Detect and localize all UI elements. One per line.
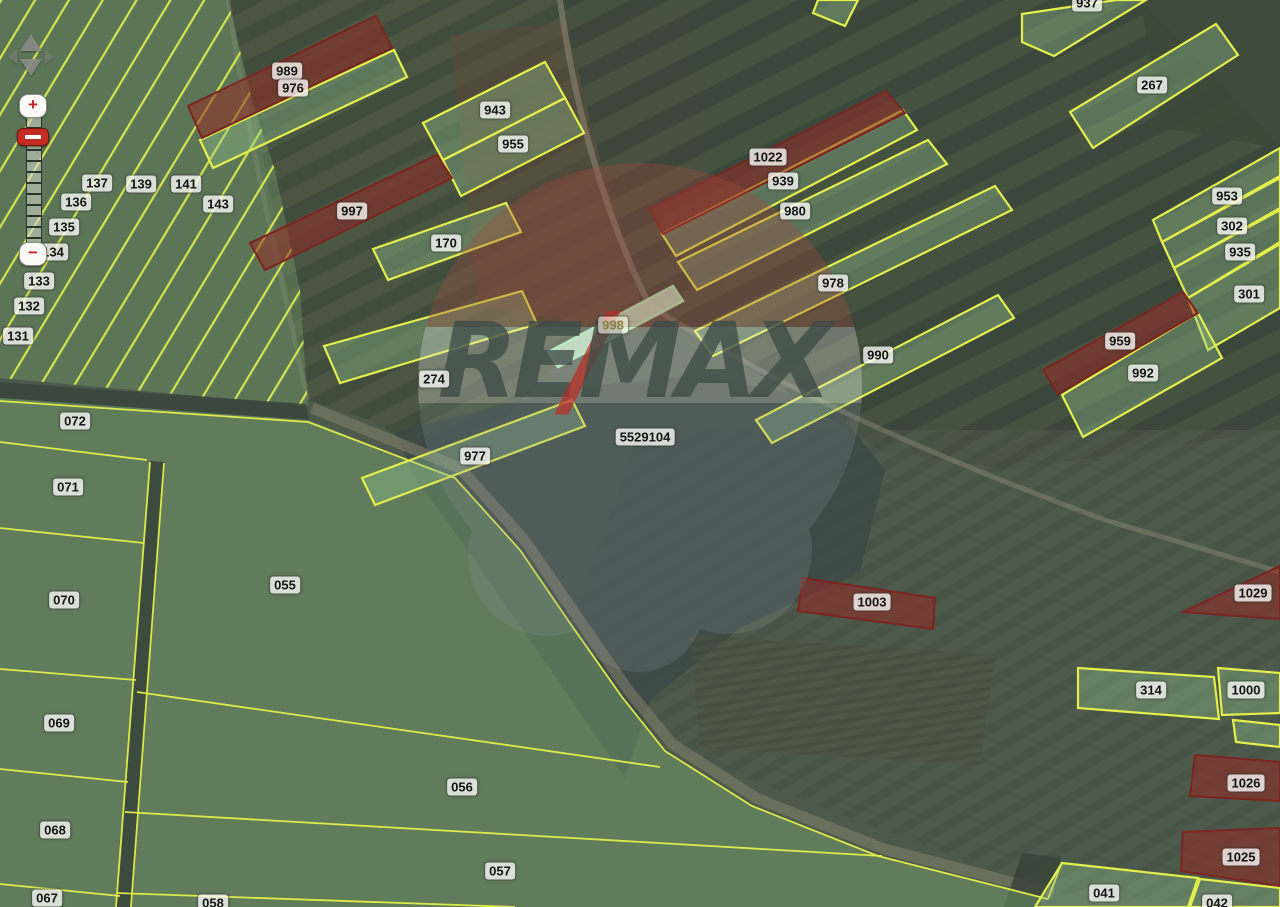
pan-right-arrow-icon[interactable] bbox=[45, 50, 54, 64]
pan-down-arrow-icon[interactable] bbox=[20, 59, 42, 76]
parcel-label[interactable]: 302 bbox=[1217, 218, 1247, 235]
parcel-label[interactable]: 139 bbox=[126, 176, 156, 193]
zoom-out-button[interactable]: − bbox=[19, 242, 47, 266]
parcel-label[interactable]: 935 bbox=[1225, 244, 1255, 261]
parcel-label[interactable]: 1029 bbox=[1235, 585, 1272, 602]
parcel-label[interactable]: 131 bbox=[3, 328, 33, 345]
parcel-label[interactable]: 058 bbox=[198, 895, 228, 907]
parcel-label[interactable]: 067 bbox=[32, 890, 62, 907]
pan-left-arrow-icon[interactable] bbox=[8, 50, 17, 64]
parcel-label[interactable]: 978 bbox=[818, 275, 848, 292]
parcel-label[interactable]: 1025 bbox=[1223, 849, 1260, 866]
map-pan-zoom-control[interactable]: + − bbox=[6, 28, 60, 278]
map-canvas[interactable]: RE / MAX bbox=[0, 0, 1280, 907]
parcel-label[interactable]: 998 bbox=[598, 317, 628, 334]
zoom-in-button[interactable]: + bbox=[19, 94, 47, 118]
parcel-label[interactable]: 141 bbox=[171, 176, 201, 193]
map-viewport[interactable]: RE / MAX 9899769439559971701022939980978… bbox=[0, 0, 1280, 907]
parcel-label[interactable]: 070 bbox=[49, 592, 79, 609]
parcel-label[interactable]: 959 bbox=[1105, 333, 1135, 350]
parcel-label[interactable]: 042 bbox=[1202, 895, 1232, 907]
parcel-label[interactable]: 1026 bbox=[1228, 775, 1265, 792]
parcel-label[interactable]: 143 bbox=[203, 196, 233, 213]
parcel-label[interactable]: 301 bbox=[1234, 286, 1264, 303]
parcel-label[interactable]: 989 bbox=[272, 63, 302, 80]
parcel-label[interactable]: 955 bbox=[498, 136, 528, 153]
parcel-label[interactable]: 132 bbox=[14, 298, 44, 315]
parcel-label[interactable]: 072 bbox=[60, 413, 90, 430]
parcel-label[interactable]: 5529104 bbox=[616, 429, 675, 446]
parcel-green-edge-right[interactable] bbox=[1233, 720, 1280, 747]
parcel-label[interactable]: 937 bbox=[1072, 0, 1102, 12]
parcel-label[interactable]: 939 bbox=[768, 173, 798, 190]
parcel-label[interactable]: 953 bbox=[1212, 188, 1242, 205]
parcel-label[interactable]: 069 bbox=[44, 715, 74, 732]
watermark-text-re: RE bbox=[437, 300, 582, 422]
parcel-label[interactable]: 992 bbox=[1128, 365, 1158, 382]
pan-up-arrow-icon[interactable] bbox=[20, 34, 42, 51]
parcel-label[interactable]: 943 bbox=[480, 102, 510, 119]
parcel-label[interactable]: 977 bbox=[460, 448, 490, 465]
parcel-label[interactable]: 055 bbox=[270, 577, 300, 594]
parcel-label[interactable]: 1000 bbox=[1228, 682, 1265, 699]
parcel-label[interactable]: 976 bbox=[278, 80, 308, 97]
parcel-label[interactable]: 137 bbox=[82, 175, 112, 192]
zoom-slider-handle[interactable] bbox=[17, 128, 49, 146]
parcel-label[interactable]: 136 bbox=[61, 194, 91, 211]
parcel-label[interactable]: 057 bbox=[485, 863, 515, 880]
parcel-label[interactable]: 170 bbox=[431, 235, 461, 252]
parcel-label[interactable]: 1003 bbox=[854, 594, 891, 611]
parcel-label[interactable]: 071 bbox=[53, 479, 83, 496]
parcel-label[interactable]: 041 bbox=[1089, 885, 1119, 902]
parcel-label[interactable]: 068 bbox=[40, 822, 70, 839]
parcel-label[interactable]: 056 bbox=[447, 779, 477, 796]
parcel-label[interactable]: 980 bbox=[780, 203, 810, 220]
parcel-label[interactable]: 314 bbox=[1136, 682, 1166, 699]
parcel-label[interactable]: 990 bbox=[863, 347, 893, 364]
parcel-label[interactable]: 267 bbox=[1137, 77, 1167, 94]
parcel-label[interactable]: 997 bbox=[337, 203, 367, 220]
parcel-label[interactable]: 274 bbox=[419, 371, 449, 388]
parcel-label[interactable]: 1022 bbox=[750, 149, 787, 166]
